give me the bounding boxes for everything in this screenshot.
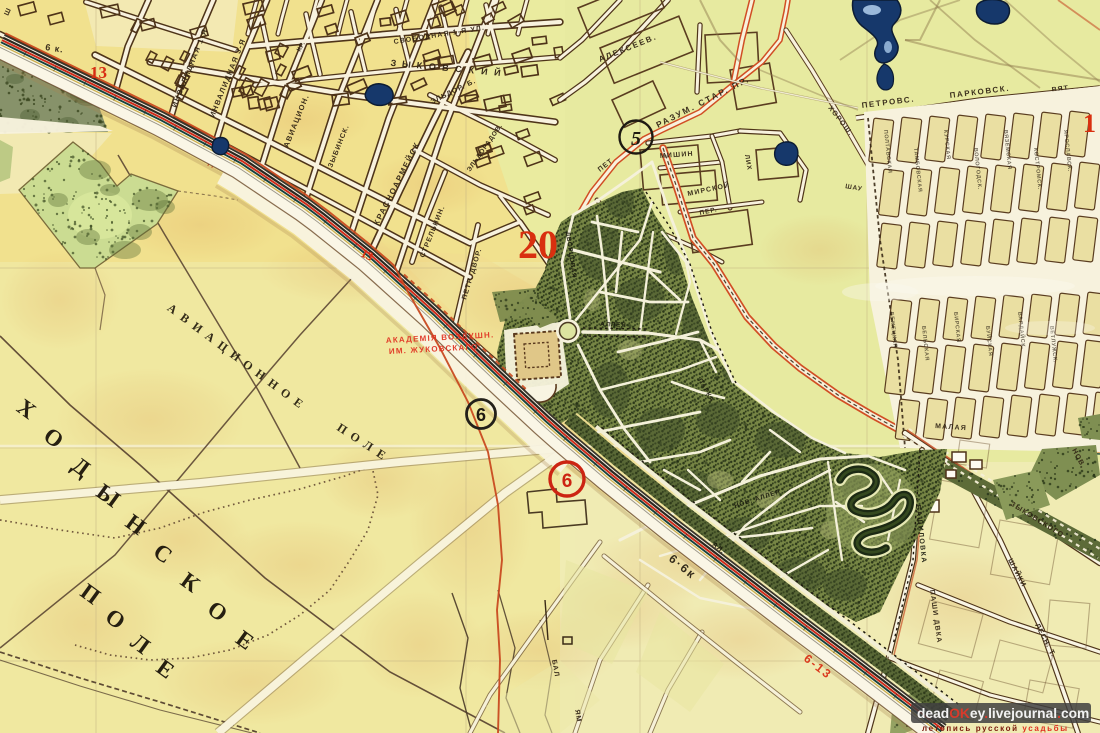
svg-text:1: 1 [1083,109,1096,138]
svg-text:6: 6 [476,405,486,425]
svg-text:5: 5 [631,128,641,150]
svg-text:Ы: Ы [401,59,411,70]
svg-text:13: 13 [90,63,107,82]
svg-text:АЛЛЕЯ: АЛЛЕЯ [600,321,627,329]
svg-text:О: О [428,61,436,72]
svg-text:deadOKey.livejournal.com: deadOKey.livejournal.com [917,706,1089,721]
svg-text:6: 6 [562,471,573,492]
svg-text:летопись русской усадьбы: летопись русской усадьбы [922,724,1069,733]
svg-text:И: И [481,66,489,77]
svg-text:20: 20 [518,222,558,267]
